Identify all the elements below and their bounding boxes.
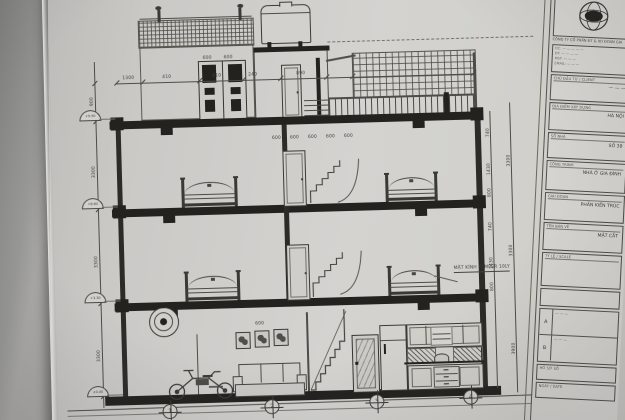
field-project: CÔNG TRÌNH NHÀ Ở GIA ĐÌNH [545, 160, 625, 194]
dim-label: 1300 [122, 76, 134, 81]
shutter-mount [161, 302, 165, 308]
footer-row: HỒ SƠ SỐ [536, 364, 617, 384]
bed-3f-left [185, 272, 241, 302]
field-drawing-name: TÊN BẢN VẼ MẶT CẮT [542, 222, 623, 254]
dim-label: 600 [203, 56, 212, 61]
level-marker: ±0.00 [87, 386, 109, 398]
beam-stub [161, 128, 173, 135]
tank-cap [279, 1, 292, 6]
wall-picture [235, 332, 250, 349]
dim-label: 3300 [97, 350, 102, 362]
roof-stair-steps [304, 96, 331, 116]
sig-text: — — — [552, 310, 618, 338]
water-tank [260, 4, 311, 44]
dim-label: 800 [487, 188, 492, 197]
dim-label: 3300 [509, 244, 514, 256]
column-block [470, 107, 483, 120]
section-drawing: 600 [0, 0, 625, 420]
dim-label: 810 [212, 73, 221, 78]
motorbike-icon [162, 362, 241, 402]
dim-label: 740 [486, 128, 491, 137]
kitchen-base-cabinets [407, 363, 484, 390]
signature-table: A — — — B — — — [537, 308, 620, 366]
door-4f [282, 150, 307, 207]
beam-stub [418, 303, 430, 310]
dim-label: 600 [272, 136, 281, 141]
dim-label: 3900 [512, 342, 517, 354]
tank-lid-seam [261, 12, 309, 14]
field-scale: TỶ LỆ / SCALE [541, 252, 623, 290]
globe-logo-icon [576, 0, 612, 34]
bed-4f-left [181, 178, 238, 208]
railing-post [444, 92, 450, 113]
sig-text: — — — [551, 335, 617, 363]
field-client: CHỦ ĐẦU TƯ / CLIENT — — — [550, 74, 625, 104]
field-houseno: SỐ NHÀ SỐ 38 [547, 132, 625, 162]
sig-row: A — — — [539, 309, 618, 339]
beam-stub [413, 121, 425, 128]
dim-label: 600 [344, 134, 353, 139]
sig-mark: B [538, 335, 552, 361]
field-phase: GIAI ĐOẠN PHẦN KIẾN TRÚC [544, 192, 625, 224]
right-dim-chain-inner [489, 111, 498, 388]
door-panel [231, 99, 241, 111]
bulkhead-roof-slab [253, 45, 329, 52]
roof-finial-icon [157, 10, 160, 22]
dim-label: 900 [90, 97, 95, 106]
ground-door [352, 334, 381, 393]
dim-label: 3300 [507, 154, 512, 166]
picture-dim: 600 [255, 321, 264, 326]
stair-handrail-curve [335, 157, 362, 204]
dim-label: 410 [162, 75, 171, 80]
photo-of-drawing: 600 [0, 0, 625, 420]
door-3f [286, 244, 311, 301]
wall-picture [254, 330, 269, 347]
dim-label: 890 [296, 71, 305, 76]
dim-label: 600 [308, 135, 317, 140]
spacer-box [540, 288, 621, 310]
dim-label: 800 [490, 282, 495, 291]
sofa [232, 362, 307, 397]
level-marker: +3.30 [84, 292, 106, 304]
level-marker: +9.90 [79, 110, 101, 122]
dim-label: 600 [290, 135, 299, 140]
fridge [379, 324, 408, 391]
beam-stub [415, 209, 427, 216]
door-meeting-stile [222, 61, 225, 119]
dim-label: 1430 [487, 163, 492, 175]
sig-row: B — — — [538, 335, 617, 364]
grid-bubble: 1 [162, 404, 177, 419]
bed-4f-right [385, 174, 438, 202]
dim-label: 3300 [94, 256, 99, 268]
roof-finial-icon [239, 8, 242, 20]
company-info-box: ĐC: — — — — — ĐT: — — — — MST: — — — EMA… [551, 44, 625, 76]
field-location: ĐỊA ĐIỂM XÂY DỰNG HÀ NỘI [548, 102, 625, 134]
door-panel-small [231, 87, 241, 94]
column-block [473, 195, 486, 208]
kitchen-upper-cabinets [406, 322, 483, 348]
beam-stub [163, 216, 175, 223]
left-wall [116, 129, 128, 396]
level-marker: +6.60 [82, 198, 104, 210]
bed-3f-right [388, 266, 441, 295]
door-panel [205, 100, 215, 112]
glass-note: MẶT KÍNH TEMPER 10LY [454, 265, 510, 274]
stair-ground [307, 301, 351, 392]
grid-bubble: 4 [463, 389, 478, 404]
door-panel-small [205, 88, 215, 95]
stair-handrail-curve [337, 249, 364, 296]
grid-bubble: 2 [264, 399, 279, 414]
wall-picture [273, 329, 288, 346]
roller-shutter-drum [149, 307, 180, 338]
dim-label: 600 [326, 134, 335, 139]
gable-roof [138, 14, 257, 121]
dim-label: 3300 [92, 166, 97, 178]
dim-label: 240 [248, 72, 257, 77]
logo-box [553, 0, 625, 40]
sig-mark: A [539, 309, 553, 335]
roof-level-dashed-line [327, 36, 533, 43]
dim-label: 600 [224, 55, 233, 60]
tum-double-door [198, 60, 248, 121]
column-block [475, 289, 488, 302]
footer-row: NGÀY / DATE [535, 382, 616, 402]
dim-label: 740 [488, 222, 493, 231]
